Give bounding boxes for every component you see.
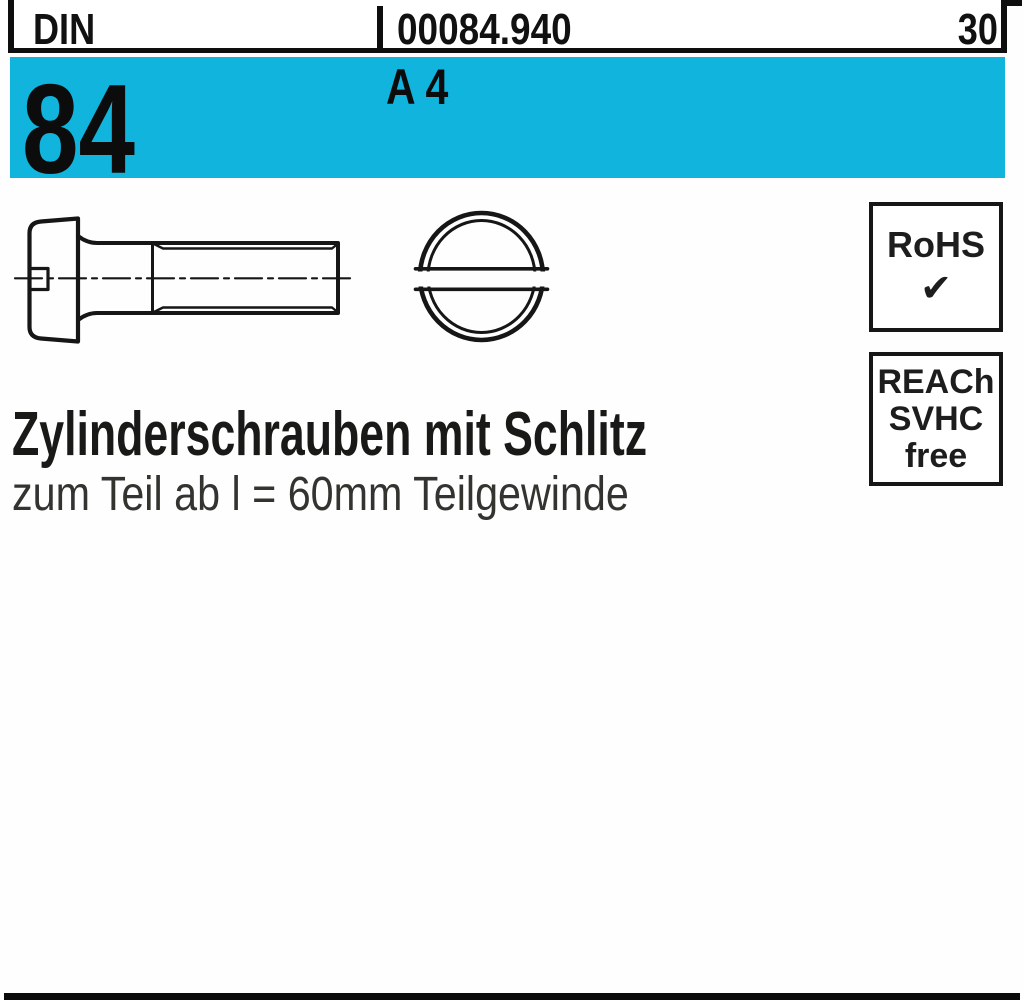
rohs-checkmark-icon: ✔ — [920, 270, 952, 308]
reach-line-1: REACh — [877, 364, 994, 401]
rohs-badge: RoHS ✔ — [869, 202, 1003, 332]
header-table: DIN 00084.940 — [8, 0, 1007, 53]
screw-head-view-drawing — [413, 213, 550, 340]
article-number-text: 00084.940 — [397, 8, 572, 52]
product-title-text: Zylinderschrauben mit Schlitz — [12, 404, 647, 466]
product-title: Zylinderschrauben mit Schlitz — [12, 404, 894, 466]
slot-clearing — [413, 272, 550, 287]
header-cell-divider — [377, 6, 383, 48]
footer-rule — [4, 993, 1020, 1000]
material-grade-text: A 4 — [386, 62, 448, 112]
product-subtitle-text: zum Teil ab l = 60mm Teilgewinde — [12, 471, 629, 519]
page-number-text: 30 — [958, 8, 998, 52]
din-label-text: DIN — [33, 8, 95, 52]
article-number: 00084.940 — [397, 8, 605, 52]
standard-number: 84 — [22, 66, 163, 193]
reach-line-2: SVHC — [889, 401, 983, 438]
page-number: 30 — [949, 8, 998, 52]
screw-technical-drawing — [0, 190, 620, 365]
rohs-label: RoHS — [887, 227, 985, 263]
reach-line-3: free — [905, 438, 967, 475]
product-subtitle: zum Teil ab l = 60mm Teilgewinde — [12, 471, 729, 519]
standard-number-text: 84 — [22, 66, 135, 193]
din-label: DIN — [33, 8, 109, 52]
screw-head-outline — [30, 219, 79, 342]
screw-side-view-drawing — [15, 219, 353, 342]
material-grade: A 4 — [386, 62, 462, 112]
